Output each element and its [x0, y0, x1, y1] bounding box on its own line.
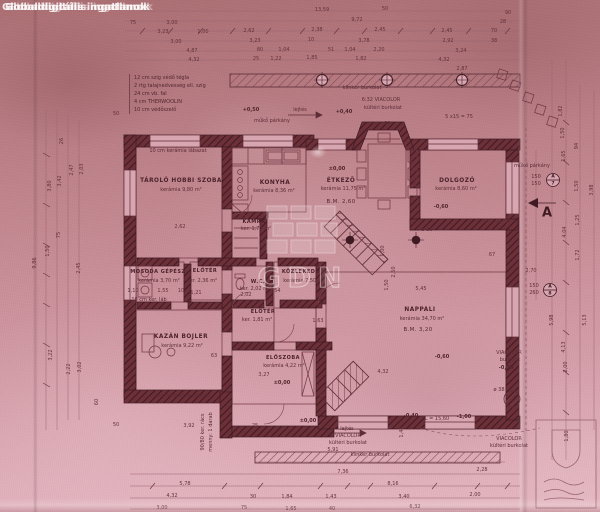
room-bm-nappali: B.M. 3,20 [403, 327, 432, 333]
room-label-eloszoba: ELŐSZOBA [266, 355, 300, 361]
annotation-label: 150 [531, 181, 541, 187]
annotation-label: kültéri burkolat [364, 105, 402, 111]
legend-item: 10 cm védőszelő [134, 106, 206, 114]
dimension-label: 3,40 [398, 494, 409, 500]
dimension-label: 60 [94, 399, 100, 405]
dimension-label: 1,55 [157, 288, 168, 294]
dimension-label: 51 [328, 47, 334, 53]
dimension-label: 1,45 [399, 426, 405, 437]
dimension-label: 1,21 [190, 290, 201, 296]
dimension-label: 5,45 [415, 286, 426, 292]
dimension-label: 70 [491, 28, 497, 34]
room-label-konyha: KONYHA [260, 180, 291, 186]
annotation-label: 10 cm kerámia lábazat [153, 393, 210, 399]
dimension-label: 1,00 [197, 29, 208, 35]
room-label-dolgozo: DOLGOZÓ [439, 178, 475, 184]
level-label: ±0,00 [274, 380, 291, 386]
room-label-eloter-2: ELŐTÉR [251, 309, 276, 315]
dimension-label: 4,32 [438, 57, 449, 63]
annotation-label: L = 15,60 [425, 416, 449, 422]
dimension-label: 1,82 [355, 56, 366, 62]
dimension-label: 75 [130, 20, 136, 26]
section-label: A [542, 206, 552, 221]
dimension-label: 26 [59, 138, 65, 144]
window-marker-1-letter: A [551, 175, 555, 180]
room-area-konyha: kerámia 8,36 m² [253, 188, 294, 194]
dimension-label: 3,23 [249, 38, 260, 44]
dimension-label: 5,98 [549, 314, 555, 325]
dimension-label: 1,50 [574, 180, 580, 191]
dimension-label: 1,65 [561, 150, 567, 161]
gdn-logo-icon [266, 205, 340, 255]
annotation-label: 150 [531, 174, 541, 180]
annotation-label: p.m. 90 [371, 121, 390, 127]
level-label: -1,00 [457, 414, 471, 420]
dimension-label: 94 [574, 143, 580, 149]
dimension-label: 2,70 [525, 268, 536, 274]
dimension-label: 2,38 [311, 27, 322, 33]
room-label-kazan: KAZÁN BOJLER [154, 334, 208, 340]
gdn-watermark-text: GDN [248, 261, 358, 294]
dimension-label: 3,00 [170, 39, 181, 45]
level-label: ±0,00 [300, 418, 317, 424]
room-label-mosoda: MOSODA GÉPÉSZ [130, 269, 185, 275]
dimension-label: 10 [178, 288, 184, 294]
annotation-label: kültéri burkolat [329, 440, 367, 446]
dimension-label: 1,43 [325, 494, 336, 500]
annotation-label: 6:32 VIACOLOR [362, 97, 401, 103]
dimension-label: 2,28 [476, 467, 487, 473]
dimension-label: 2,00 [469, 492, 480, 498]
room-area-dolgozo: kerámia 8,60 m² [435, 186, 476, 192]
window-marker-2-letter: A [548, 285, 552, 290]
corner-watermark: Globaldigitális ingatlanok [2, 2, 147, 13]
dimension-label: 2,00 [563, 361, 569, 372]
dimension-label: 30 [250, 494, 256, 500]
dimension-label: 28 [500, 19, 506, 25]
dimension-label: 1,82 [558, 105, 564, 116]
dimension-label: 1,50 [384, 279, 390, 290]
legend-item: 24 cm vb. fal [134, 90, 206, 98]
dimension-label: 3,27 [258, 372, 269, 378]
dimension-label: 40 [329, 506, 335, 512]
dimension-label: 50 [113, 422, 119, 428]
annotation-label: menny: 1 darab [208, 412, 214, 451]
dimension-label: 75 [56, 232, 62, 238]
level-label: +0,40 [336, 109, 353, 115]
dimension-label: 3,23 [157, 29, 168, 35]
dimension-label: 3,00 [156, 505, 167, 511]
dimension-label: 1,04 [278, 47, 289, 53]
dimension-label: 1,63 [312, 318, 323, 324]
room-area-eloter-2: ker. 1,81 m² [242, 317, 272, 323]
level-label: ±0,00 [329, 166, 346, 172]
annotation-label: klinker burkolat [343, 85, 382, 91]
dimension-label: 25 [252, 423, 258, 429]
window-marker-2-number: 8 [548, 292, 551, 297]
dimension-label: 2,50 [391, 266, 397, 277]
dimension-label: 3,78 [358, 38, 369, 44]
annotation-label: műkő párkány [254, 118, 290, 124]
annotation-label: ø 38 [493, 387, 504, 393]
dimension-label: 9,72 [351, 17, 362, 23]
dimension-label: 1,85 [306, 55, 317, 61]
dimension-label: 1,22 [270, 56, 281, 62]
dimension-label: 32 [485, 219, 491, 225]
dimension-label: 7,36 [337, 469, 348, 475]
dimension-label: 2,20 [373, 47, 384, 53]
room-label-tarolo: TÁROLÓ HOBBI SZOBA [140, 178, 222, 184]
dimension-label: 2,62 [174, 224, 185, 230]
window-marker-1-number: 7 [551, 182, 554, 187]
dimension-label: 5,13 [582, 314, 588, 325]
room-area-mosoda: kerámia 3,70 m² [138, 278, 179, 284]
dimension-label: 4,04 [562, 226, 568, 237]
level-label: +0,50 [243, 107, 260, 113]
annotation-label: VIACOLOR [496, 436, 522, 442]
room-area-etkezo: kerámia 11,75 m² [321, 186, 366, 192]
dimension-label: 3,22 [48, 349, 54, 360]
dimension-label: 5,91 [327, 447, 338, 453]
dimension-label: 90 [505, 10, 511, 16]
dimension-label: 75 [241, 505, 247, 511]
dimension-label: 4,32 [377, 369, 388, 375]
dimension-label: 1,00 [380, 245, 386, 256]
dimension-label: 1,50 [560, 127, 566, 138]
dimension-label: 9,86 [32, 257, 38, 268]
annotation-label: 5 x15 = 75 [445, 114, 473, 120]
room-area-nappali: kerámia 34,70 m² [400, 316, 445, 322]
gdn-watermark: GDN [248, 205, 358, 294]
dimension-label: 1,50 [45, 245, 51, 256]
dimension-label: 10 [308, 37, 314, 43]
dimension-label: 6,32 [409, 504, 420, 510]
dimension-label: 2,22 [66, 363, 72, 374]
dimension-label: 3,92 [183, 423, 194, 429]
dimension-label: 2,45 [374, 27, 385, 33]
room-area-eloter-1: ker. 2,36 m² [187, 278, 217, 284]
dimension-label: 3,00 [166, 20, 177, 26]
room-area-kazan: kerámia 9,22 m² [161, 343, 202, 349]
dimension-label: 1,84 [281, 494, 292, 500]
dimension-label: 2,47 [69, 164, 75, 175]
dimension-label: 2,92 [442, 38, 453, 44]
dimension-label: 1,80 [564, 430, 570, 441]
annotation-label: 150 [529, 283, 539, 289]
dimension-label: 63 [211, 353, 217, 359]
dimension-label: 1,72 [575, 249, 581, 260]
level-label: -0,60 [434, 204, 448, 210]
annotation-label: 260 [529, 290, 539, 296]
level-label: -0,60 [435, 354, 449, 360]
dimension-label: 1,04 [344, 47, 355, 53]
room-label-etkezo: ÉTKEZŐ [327, 178, 356, 184]
annotation-label: 10 cm ker. láb [131, 297, 166, 303]
dimension-label: 25 [253, 56, 259, 62]
dimension-label: 1,10 [127, 288, 138, 294]
level-label: -0,40 [404, 413, 418, 419]
construction-legend: 12 cm szig védő tégla 2 rtg talajnedvess… [129, 74, 206, 114]
annotation-label: VIACOLOR [496, 350, 522, 356]
dimension-label: 2,45 [76, 262, 82, 273]
annotation-label: lejtés [340, 426, 354, 432]
legend-item: 4 cm THERWOOLIN [134, 98, 206, 106]
dimension-label: 38 [505, 252, 511, 258]
dimension-label: 80 [257, 47, 263, 53]
annotation-label: klinker burkolat [351, 452, 390, 458]
dimension-label: 8,16 [387, 481, 398, 487]
room-label-nappali: NAPPALI [404, 307, 435, 313]
annotation-label: 10 cm kerámia lábazat [149, 148, 206, 154]
dimension-label: 4,32 [188, 57, 199, 63]
dimension-label: 4,32 [166, 493, 177, 499]
dimension-label: 1,65 [285, 506, 296, 512]
room-area-tarolo: kerámia 9,80 m² [160, 187, 201, 193]
level-label: -0,70 [499, 365, 513, 371]
dimension-label: 4,13 [561, 341, 567, 352]
dimension-label: 3,98 [589, 184, 595, 195]
annotation-label: burkolat [500, 357, 521, 363]
dimension-label: 2,45 [441, 28, 452, 34]
dimension-label: 50 [382, 6, 388, 12]
legend-item: 2 rtg talajnedvesség ell. szig [134, 82, 206, 90]
dimension-label: 3,02 [77, 361, 83, 372]
dimension-label: 50 [113, 111, 119, 117]
dimension-label: 4,87 [186, 48, 197, 54]
dimension-label: 36 [495, 219, 501, 225]
floorplan-scan: TÁROLÓ HOBBI SZOBA kerámia 9,80 m² KONYH… [0, 0, 600, 512]
dimension-label: 38 [491, 38, 497, 44]
annotation-label: 90/80 ker. rács [200, 413, 206, 450]
dimension-label: 3,80 [47, 180, 53, 191]
annotation-label: lejtés [293, 107, 307, 113]
annotation-label: kültéri burkolat [490, 443, 528, 449]
dimension-label: 2,62 [243, 28, 254, 34]
room-label-eloter-1: ELŐTÉR [193, 268, 218, 274]
dimension-label: 67 [489, 252, 495, 258]
annotation-label: VIACOLOR [335, 433, 361, 439]
dimension-label: 2,87 [456, 66, 467, 72]
dimension-label: 3,24 [455, 48, 466, 54]
dimension-label: 1,25 [575, 214, 581, 225]
dimension-label: 2,03 [79, 163, 85, 174]
dimension-label: 3,42 [57, 175, 63, 186]
dimension-label: 5,78 [179, 481, 190, 487]
annotation-label: ø 30 [421, 227, 432, 233]
annotation-label: műkő párkány [514, 163, 550, 169]
dimension-label: 13,59 [315, 7, 329, 13]
legend-item: 12 cm szig védő tégla [134, 74, 206, 82]
dimension-label: 35 [505, 219, 511, 225]
room-area-eloszoba: kerámia 4,22 m² [263, 363, 304, 369]
